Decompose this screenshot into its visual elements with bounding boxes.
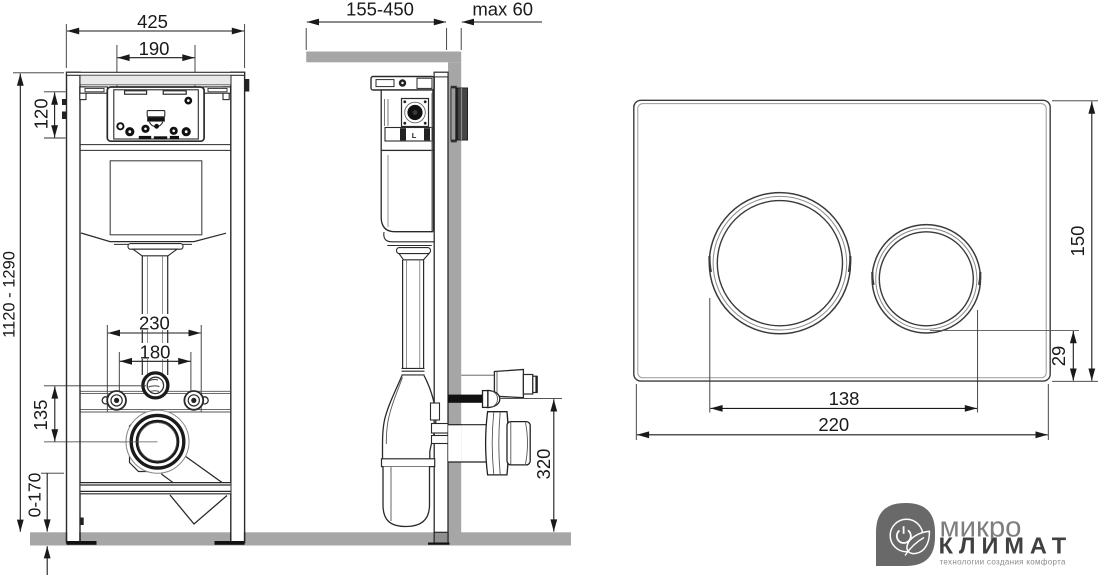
svg-text:155-450: 155-450: [346, 0, 414, 20]
svg-text:190: 190: [139, 38, 170, 59]
svg-text:320: 320: [533, 449, 554, 480]
svg-text:138: 138: [829, 388, 860, 409]
svg-text:230: 230: [139, 313, 170, 334]
svg-text:1120 - 1290: 1120 - 1290: [1, 251, 19, 338]
svg-text:технологии создания комфорта: технологии создания комфорта: [940, 558, 1067, 567]
svg-text:150: 150: [1067, 226, 1088, 257]
svg-text:180: 180: [140, 342, 171, 363]
svg-text:120: 120: [30, 98, 51, 129]
svg-text:220: 220: [818, 414, 849, 435]
svg-text:0-170: 0-170: [25, 472, 45, 517]
svg-text:L: L: [412, 131, 417, 140]
svg-text:max 60: max 60: [472, 0, 533, 20]
svg-text:29: 29: [1048, 346, 1069, 367]
svg-text:425: 425: [137, 11, 168, 32]
svg-text:135: 135: [30, 400, 51, 431]
